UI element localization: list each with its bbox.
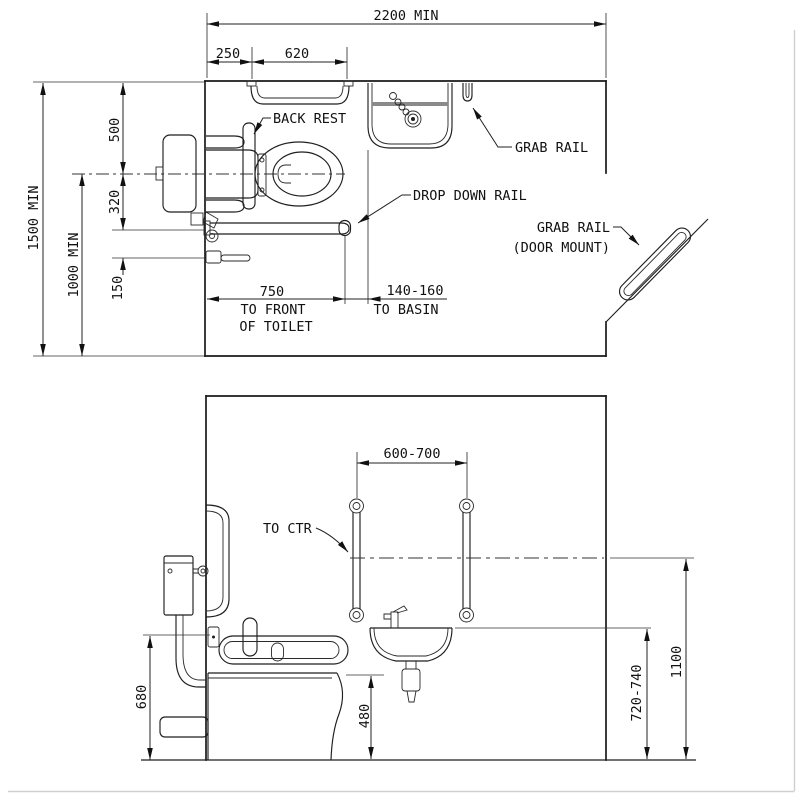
back-rest-leader bbox=[254, 118, 271, 134]
to-ctr-leader bbox=[316, 528, 348, 552]
dim-to-basin-label: TO BASIN bbox=[373, 302, 438, 318]
tap-plan bbox=[390, 93, 397, 100]
toilet-roll-holder-plan bbox=[191, 212, 250, 263]
drop-down-rail-plan bbox=[204, 221, 351, 236]
dim-1100: 1100 bbox=[669, 646, 685, 679]
dim-320: 320 bbox=[107, 190, 123, 214]
label-drop-down-rail: DROP DOWN RAIL bbox=[413, 188, 527, 204]
tap-elevation bbox=[391, 612, 398, 628]
plan-view: 2200 MIN 250 620 1500 MIN 1000 MIN 500 3… bbox=[26, 8, 708, 356]
label-back-rest: BACK REST bbox=[273, 111, 346, 127]
door-grab-rail bbox=[616, 225, 694, 304]
label-to-ctr: TO CTR bbox=[263, 521, 313, 537]
grab-rail-leader bbox=[473, 108, 512, 147]
label-grab-rail-door-1: GRAB RAIL bbox=[537, 220, 610, 236]
basin-elevation bbox=[370, 606, 452, 702]
plan-extension-lines bbox=[33, 13, 606, 356]
dim-620: 620 bbox=[285, 46, 309, 62]
basin-plan bbox=[368, 83, 452, 148]
drawing-page: 2200 MIN 250 620 1500 MIN 1000 MIN 500 3… bbox=[0, 0, 800, 800]
wall-grab-rail-plan bbox=[247, 81, 353, 104]
dim-750-label1: TO FRONT bbox=[240, 302, 305, 318]
dim-500: 500 bbox=[107, 118, 123, 142]
dim-150: 150 bbox=[110, 276, 126, 300]
backrest-arm-top bbox=[206, 136, 244, 148]
soil-pipe bbox=[160, 717, 208, 737]
elevation-extension-lines bbox=[143, 452, 694, 675]
cistern-elevation bbox=[160, 556, 208, 737]
vertical-grab-rails-elevation bbox=[350, 499, 474, 622]
seat-bracket bbox=[243, 618, 257, 656]
backrest-pad bbox=[243, 123, 255, 209]
label-grab-rail-door-2: (DOOR MOUNT) bbox=[512, 240, 610, 256]
flush-pipe bbox=[176, 615, 206, 687]
dim-1000-min: 1000 MIN bbox=[66, 232, 82, 297]
drop-down-rail-elevation bbox=[208, 627, 348, 664]
dim-480: 480 bbox=[357, 704, 373, 728]
dim-1500-min: 1500 MIN bbox=[26, 185, 42, 250]
elevation-texts: 600-700 TO CTR 680 480 720-740 1100 bbox=[134, 446, 685, 728]
backrest-arm-bottom bbox=[206, 200, 244, 212]
dim-750-label2: OF TOILET bbox=[239, 319, 312, 335]
dim-overall-width: 2200 MIN bbox=[373, 8, 438, 24]
dim-720-740: 720-740 bbox=[629, 665, 645, 722]
dim-750: 750 bbox=[260, 284, 284, 300]
door-leaf bbox=[606, 219, 708, 322]
toilet-elevation bbox=[208, 618, 343, 760]
plan-dimension-texts: 2200 MIN 250 620 1500 MIN 1000 MIN 500 3… bbox=[26, 8, 443, 335]
elevation-view: 600-700 TO CTR 680 480 720-740 1100 bbox=[134, 396, 696, 760]
label-grab-rail: GRAB RAIL bbox=[515, 140, 588, 156]
dim-600-700: 600-700 bbox=[384, 446, 441, 462]
door-grab-rail-leader bbox=[613, 227, 639, 245]
wall-bracket bbox=[191, 213, 203, 225]
drop-down-rail-leader bbox=[358, 195, 411, 223]
flush-button-plan bbox=[156, 167, 163, 180]
side-rail-elevation bbox=[206, 505, 229, 617]
dim-680: 680 bbox=[134, 685, 150, 709]
bottle-trap bbox=[406, 661, 416, 669]
vertical-grab-rail-plan bbox=[463, 83, 472, 101]
cistern-plan bbox=[163, 135, 196, 212]
dim-140-160: 140-160 bbox=[387, 283, 444, 299]
dim-250: 250 bbox=[216, 46, 240, 62]
technical-drawing: 2200 MIN 250 620 1500 MIN 1000 MIN 500 3… bbox=[0, 0, 800, 800]
